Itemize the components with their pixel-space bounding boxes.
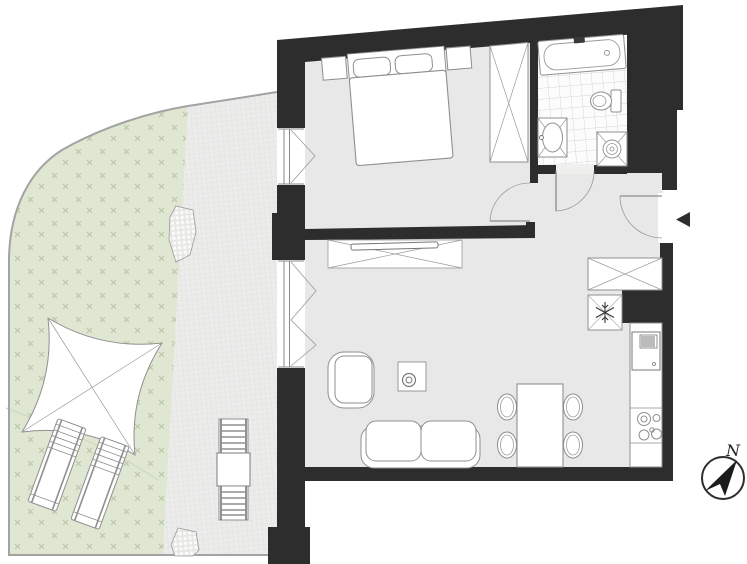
wall-right-top-mass xyxy=(627,27,683,190)
dining-chair xyxy=(564,394,583,420)
nightstand xyxy=(446,46,472,70)
sofa xyxy=(361,421,480,468)
wall-bedroom-hall xyxy=(530,38,538,183)
compass: N xyxy=(702,441,744,499)
compass-north-label: N xyxy=(725,441,741,460)
outdoor-table xyxy=(217,453,250,486)
wall-bathroom-left-stub xyxy=(537,165,556,174)
decor-bowl xyxy=(403,374,416,387)
dining-table xyxy=(517,384,563,467)
bedroom-door-threshold xyxy=(528,182,540,224)
oven xyxy=(632,332,660,370)
bedroom-wardrobe xyxy=(490,43,528,163)
shower xyxy=(597,132,627,166)
entry-closet xyxy=(588,258,662,290)
sofa-cushion xyxy=(366,421,421,461)
pillow xyxy=(353,57,391,78)
basin-faucet xyxy=(540,136,544,140)
floor-plan: N xyxy=(0,0,747,564)
wall-left-lower xyxy=(277,368,305,527)
pillow xyxy=(395,53,433,74)
toilet xyxy=(591,90,622,112)
double-bed xyxy=(349,70,453,166)
wall-left-upper xyxy=(277,55,305,130)
outdoor-chair xyxy=(219,419,248,453)
tub-drain xyxy=(604,50,609,55)
outdoor-chair xyxy=(219,486,248,520)
wall-left-protrusion xyxy=(272,213,277,260)
side-table xyxy=(398,362,426,391)
wall-left-bottom-block xyxy=(268,527,310,564)
armchair xyxy=(328,352,374,408)
tub-faucet xyxy=(574,37,585,44)
washbasin xyxy=(538,118,567,157)
tv-sideboard xyxy=(328,240,462,268)
nightstand xyxy=(321,56,347,80)
dining-chair xyxy=(564,432,583,458)
floor-plan-canvas: N xyxy=(0,0,747,564)
kitchen-counter xyxy=(630,323,662,467)
wall-bottom xyxy=(292,467,673,481)
wall-door-cap xyxy=(526,222,535,238)
dining-chair xyxy=(498,432,517,458)
wall-left-mid xyxy=(277,185,305,260)
dining-chair xyxy=(498,394,517,420)
entrance-arrow-icon xyxy=(676,212,690,227)
wall-kitchen-chunk xyxy=(622,290,673,323)
sofa-cushion xyxy=(421,421,476,461)
refrigerator xyxy=(588,295,622,330)
